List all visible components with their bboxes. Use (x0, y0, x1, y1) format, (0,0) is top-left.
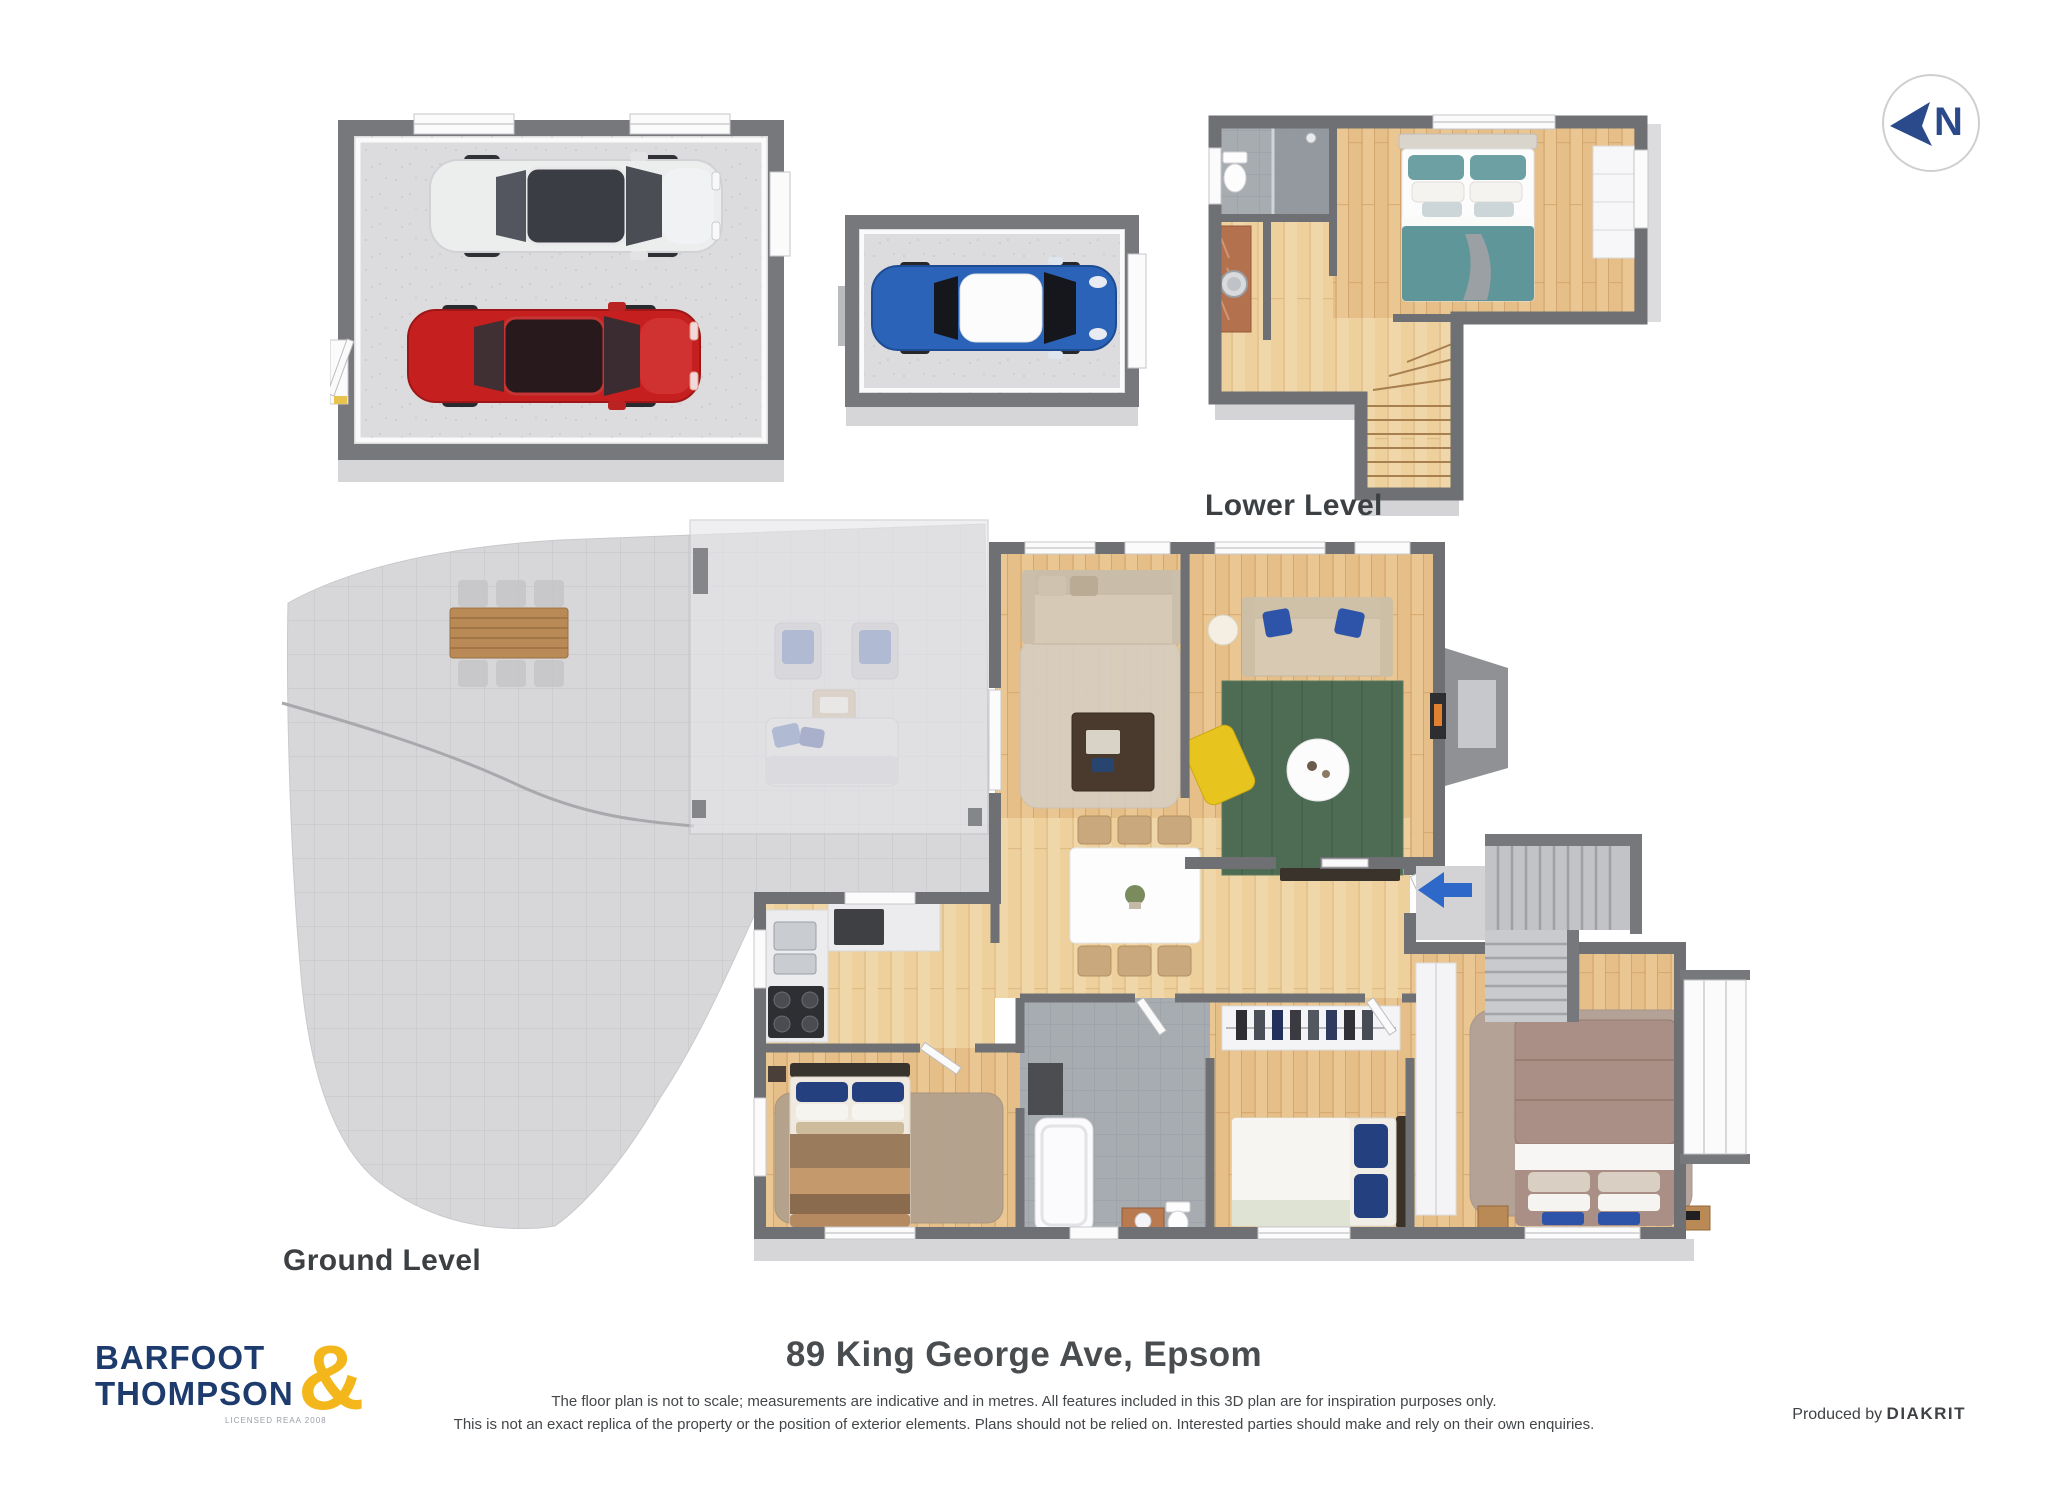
master-bed (1515, 1020, 1675, 1226)
produced-by-prefix: Produced by (1792, 1406, 1886, 1423)
barfoot-thompson-logo: BARFOOT THOMPSON & LICENSED REAA 2008 (95, 1340, 395, 1460)
family-sofa (1022, 570, 1185, 644)
kitchen-sink (774, 922, 816, 974)
single-garage-plan (838, 188, 1160, 440)
bedroom3-bed (1232, 1116, 1408, 1228)
floorplan-page: N (0, 0, 2048, 1494)
toilet (1223, 152, 1247, 192)
floor-lamp (1208, 615, 1238, 645)
outdoor-dining-set (450, 580, 568, 687)
lounge-sofa (1242, 597, 1393, 677)
nightstand (768, 1066, 786, 1082)
ground-level-plan (280, 518, 1780, 1268)
lower-level-label: Lower Level (1205, 489, 1383, 523)
laundry-bench (1217, 226, 1251, 332)
compass-north-letter: N (1934, 100, 1963, 145)
logo-license-text: LICENSED REAA 2008 (225, 1416, 327, 1425)
storage-rack (1028, 1063, 1063, 1115)
round-coffee-table (1287, 739, 1349, 801)
red-car (408, 302, 700, 410)
veranda-roof (690, 520, 988, 834)
producer-name: DIAKRIT (1887, 1404, 1966, 1423)
kitchen-appliance (834, 909, 884, 945)
compass-arrow-icon (1884, 76, 1978, 170)
stove (768, 986, 824, 1038)
coffee-table (1072, 713, 1154, 791)
bay-window (1680, 970, 1750, 1164)
double-garage-plan (330, 112, 792, 488)
nightstand (1478, 1206, 1508, 1230)
lower-bedroom-bed (1399, 134, 1537, 301)
dining-set (1070, 816, 1200, 976)
garage-wall-extrusion (338, 460, 784, 482)
compass: N (1882, 74, 1980, 172)
ground-level-label: Ground Level (283, 1244, 481, 1278)
lower-wardrobe (1593, 146, 1637, 258)
family-room-furniture (1020, 570, 1185, 808)
blue-car (872, 257, 1116, 359)
white-car (430, 152, 722, 260)
garage-door-opening (1128, 254, 1146, 368)
lower-level-plan (1193, 108, 1668, 523)
produced-by: Produced by DIAKRIT (1792, 1404, 1966, 1424)
bathtub (1035, 1118, 1093, 1233)
media-console (1280, 868, 1400, 881)
